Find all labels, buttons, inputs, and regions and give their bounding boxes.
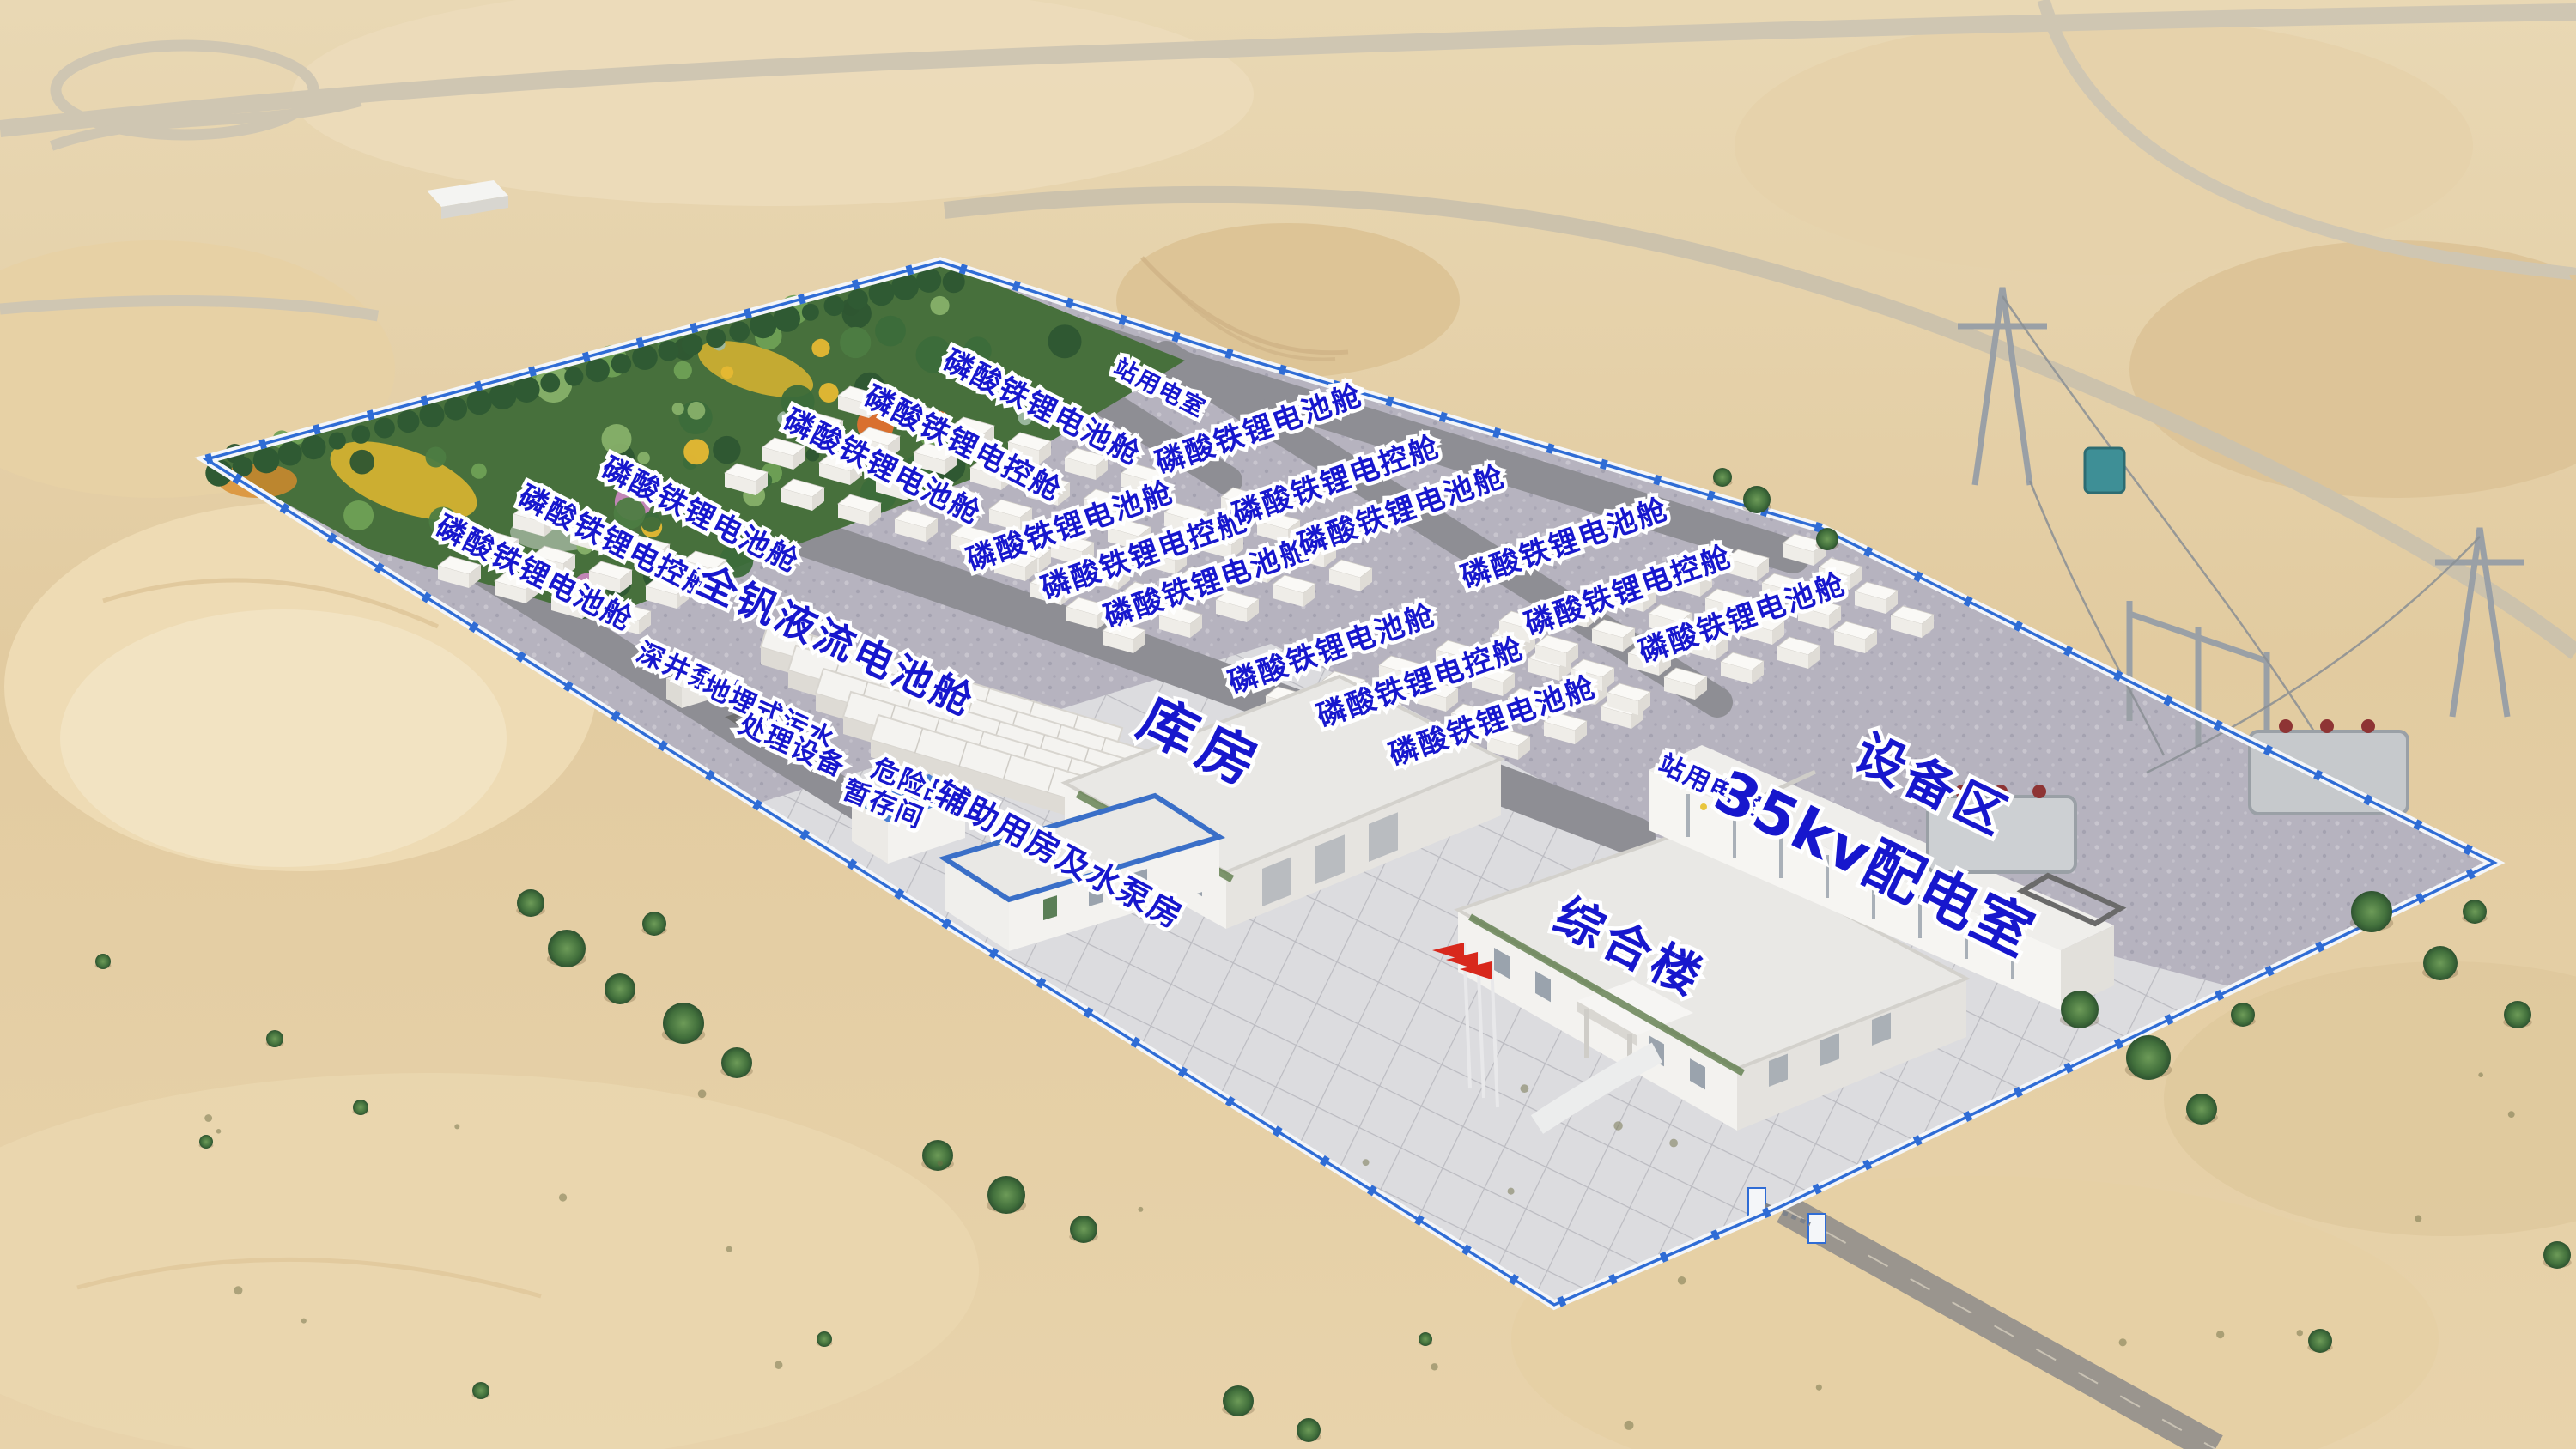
conifer-tree bbox=[729, 321, 750, 342]
desert-tree bbox=[548, 930, 586, 967]
desert-shrub bbox=[1625, 1421, 1634, 1430]
desert-shrub bbox=[1678, 1276, 1686, 1285]
desert-shrub bbox=[2119, 1338, 2127, 1346]
desert-tree bbox=[472, 1382, 489, 1399]
desert-tree bbox=[2126, 1035, 2171, 1080]
conifer-tree bbox=[397, 410, 419, 433]
garden-tree bbox=[943, 270, 965, 293]
conifer-tree bbox=[419, 403, 444, 427]
conifer-tree bbox=[540, 373, 560, 393]
desert-tree bbox=[517, 889, 544, 917]
conifer-tree bbox=[278, 442, 302, 466]
desert-tree bbox=[987, 1176, 1025, 1214]
desert-shrub bbox=[938, 1161, 943, 1166]
desert-shrub bbox=[2478, 1072, 2483, 1077]
desert-shrub bbox=[775, 1361, 783, 1369]
conifer-tree bbox=[802, 304, 819, 321]
garden-tree bbox=[688, 402, 706, 420]
garden-tree bbox=[349, 450, 374, 475]
desert-shrub bbox=[216, 1129, 222, 1134]
desert-tree bbox=[199, 1135, 213, 1149]
desert-tree bbox=[663, 1003, 704, 1044]
garden-tree bbox=[713, 436, 740, 464]
garden-tree bbox=[819, 383, 839, 403]
desert-shrub bbox=[698, 1089, 707, 1098]
desert-tree bbox=[1297, 1418, 1321, 1442]
desert-tree bbox=[2351, 891, 2392, 932]
desert-tree bbox=[266, 1030, 283, 1047]
desert-tree bbox=[1419, 1332, 1432, 1346]
desert-shrub bbox=[1138, 1207, 1143, 1212]
desert-tree bbox=[721, 1047, 752, 1078]
desert-tree bbox=[642, 912, 666, 936]
garden-tree bbox=[840, 327, 871, 358]
desert-tree bbox=[2186, 1094, 2217, 1125]
desert-tree bbox=[922, 1140, 953, 1171]
desert-shrub bbox=[559, 1193, 567, 1201]
garden-tree bbox=[1048, 324, 1082, 358]
garden-tree bbox=[471, 464, 487, 479]
desert-tree bbox=[2504, 1001, 2531, 1028]
desert-tree bbox=[1816, 528, 1838, 550]
desert-shrub bbox=[1669, 1139, 1678, 1148]
conifer-tree bbox=[564, 367, 583, 386]
conifer-tree bbox=[848, 289, 868, 310]
garden-tree bbox=[683, 439, 709, 464]
desert-shrub bbox=[1613, 1121, 1622, 1130]
desert-tree bbox=[1713, 468, 1732, 487]
conifer-tree bbox=[682, 334, 703, 355]
conifer-tree bbox=[253, 447, 280, 474]
desert-shrub bbox=[1508, 1188, 1515, 1195]
desert-tree bbox=[817, 1331, 832, 1347]
conifer-tree bbox=[329, 432, 346, 449]
garden-tree bbox=[875, 316, 906, 347]
desert-shrub bbox=[1521, 1084, 1529, 1093]
desert-shrub bbox=[454, 1124, 459, 1129]
desert-shrub bbox=[301, 1319, 307, 1324]
garden-tree bbox=[811, 339, 829, 357]
desert-tree bbox=[2543, 1241, 2571, 1269]
garden-tree bbox=[930, 296, 949, 315]
desert-tree bbox=[2061, 991, 2099, 1028]
desert-shrub bbox=[2297, 1330, 2303, 1336]
desert-tree bbox=[353, 1100, 368, 1115]
desert-tree bbox=[1223, 1385, 1254, 1416]
aerial-site-rendering: 站用电室 磷酸铁锂电池舱 磷酸铁锂电控舱 磷酸铁锂电池舱 磷酸铁锂电池舱 磷酸铁… bbox=[0, 0, 2576, 1449]
conifer-tree bbox=[352, 425, 371, 444]
conifer-tree bbox=[706, 328, 726, 348]
desert-shrub bbox=[1816, 1385, 1822, 1391]
desert-tree bbox=[605, 973, 635, 1004]
conifer-tree bbox=[824, 295, 845, 316]
scene-canvas bbox=[0, 0, 2576, 1449]
desert-shrub bbox=[1363, 1159, 1370, 1166]
desert-tree bbox=[2463, 900, 2487, 924]
conifer-tree bbox=[658, 341, 678, 361]
conifer-tree bbox=[586, 358, 610, 382]
desert-shrub bbox=[2415, 1216, 2421, 1222]
garden-tree bbox=[426, 447, 447, 468]
desert-tree bbox=[1070, 1216, 1097, 1243]
desert-tree bbox=[2423, 946, 2458, 980]
desert-tree bbox=[2308, 1329, 2332, 1353]
garden-tree bbox=[672, 403, 684, 415]
desert-shrub bbox=[726, 1246, 732, 1252]
conifer-tree bbox=[444, 397, 467, 421]
desert-shrub bbox=[1431, 1363, 1437, 1370]
desert-shrub bbox=[2508, 1111, 2515, 1118]
desert-tree bbox=[1743, 486, 1771, 513]
conifer-tree bbox=[466, 390, 491, 415]
desert-shrub bbox=[204, 1114, 212, 1122]
garden-tree bbox=[343, 500, 374, 530]
conifer-tree bbox=[301, 435, 325, 459]
desert-tree bbox=[2231, 1003, 2255, 1027]
garden-tree bbox=[674, 361, 692, 379]
conifer-tree bbox=[611, 354, 632, 374]
garden-tree bbox=[721, 367, 734, 379]
desert-shrub bbox=[234, 1286, 242, 1294]
conifer-tree bbox=[374, 418, 395, 439]
desert-tree bbox=[95, 954, 111, 969]
desert-shrub bbox=[2216, 1331, 2224, 1338]
